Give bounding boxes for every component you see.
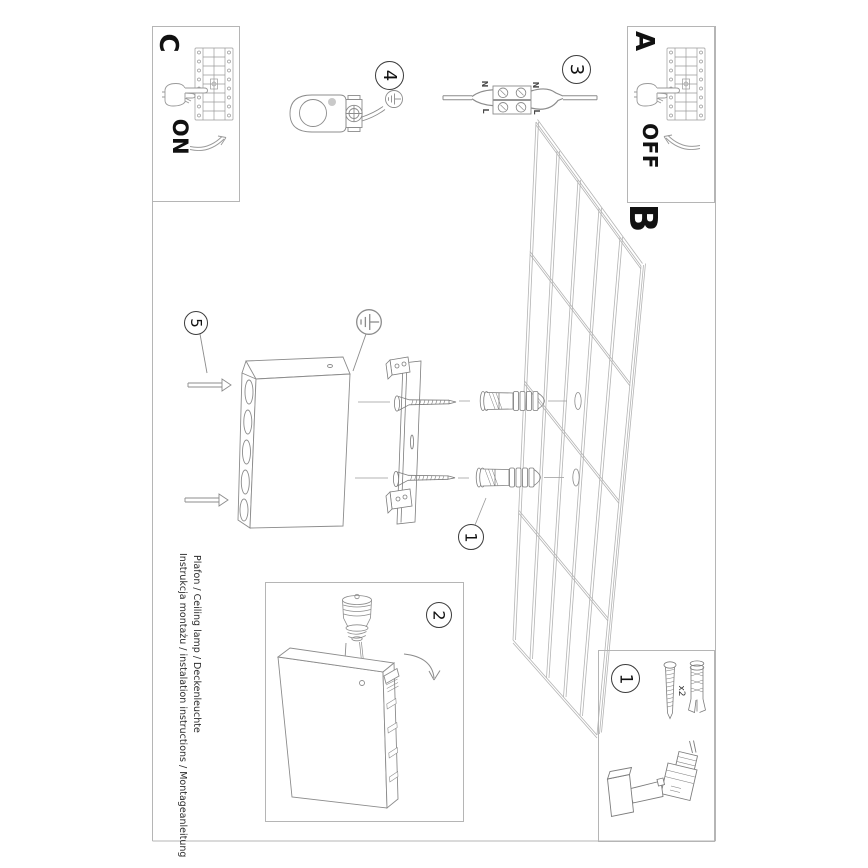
step2-badge: 2 [426, 602, 452, 628]
product-name: Plafon / Ceiling lamp / Deckenleuchte [189, 555, 203, 725]
step4-badge: 4 [375, 61, 404, 90]
earth-symbol-icon-small [386, 91, 403, 108]
wall-plug-icon [480, 392, 544, 411]
wall-plug-icon [476, 468, 540, 487]
instructions-title: Instrukcja montażu / instalation instruc… [175, 553, 189, 843]
step1-leader [475, 498, 486, 525]
neutral-label-right: N [529, 78, 543, 92]
switch-on-label: ON [167, 113, 193, 161]
terminal-block-icon [443, 86, 597, 114]
live-label-right: L [530, 105, 544, 119]
step1-wall-badge: 1 [458, 524, 484, 550]
section-c-label: C [153, 27, 183, 59]
step5-leader [200, 334, 207, 373]
neutral-label-left: N [478, 77, 492, 91]
earth-symbol-icon-large [357, 310, 382, 335]
cable-clamp-icon [290, 95, 385, 132]
mounting-plate-icon [355, 357, 470, 524]
lamp-housing [238, 334, 366, 528]
instruction-sheet: C A B ON OFF 5 4 3 1 2 1 N L N L x2 Inst… [0, 0, 868, 868]
push-arrow-icon [185, 334, 231, 506]
step1-parts-badge: 1 [611, 664, 640, 693]
section-b-label: B [621, 196, 665, 240]
drill-hole [575, 393, 581, 410]
drill-hole [573, 469, 579, 486]
earth-leader [353, 334, 366, 371]
step3-badge: 3 [562, 55, 591, 84]
step5-badge: 5 [184, 311, 208, 335]
section-a-label: A [629, 25, 659, 57]
screw-plug-quantity: x2 [675, 680, 687, 702]
switch-off-label: OFF [637, 116, 663, 176]
live-label-left: L [479, 104, 493, 118]
